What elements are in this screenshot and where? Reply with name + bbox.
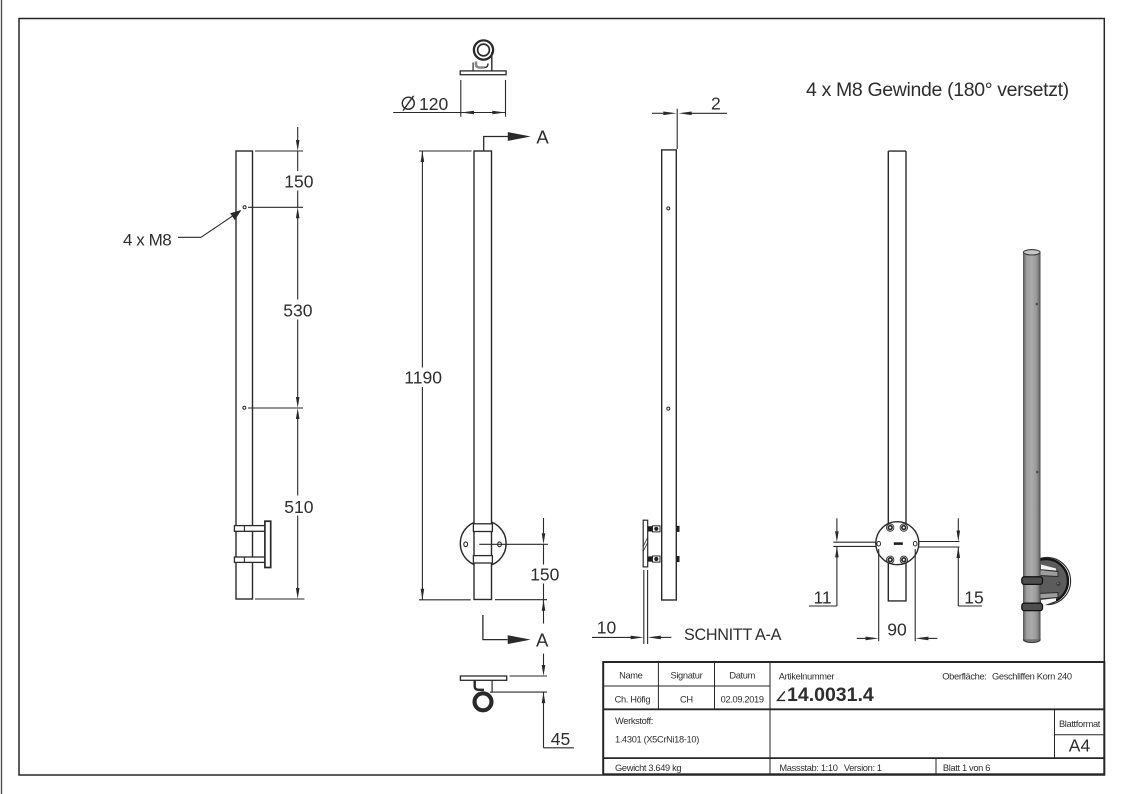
svg-text:4 x M8 Gewinde (180° versetzt): 4 x M8 Gewinde (180° versetzt)	[806, 79, 1069, 101]
svg-text:02.09.2019: 02.09.2019	[721, 695, 764, 705]
svg-text:510: 510	[284, 497, 313, 517]
svg-text:45: 45	[551, 729, 570, 749]
svg-text:Version: 1: Version: 1	[844, 763, 882, 773]
svg-text:Oberfläche:: Oberfläche:	[942, 671, 986, 681]
svg-text:11: 11	[814, 588, 832, 608]
svg-text:Gewicht 3.649 kg: Gewicht 3.649 kg	[615, 763, 681, 773]
svg-text:Werkstoff:: Werkstoff:	[615, 716, 653, 726]
svg-text:Artikelnummer: Artikelnummer	[779, 671, 835, 681]
svg-text:150: 150	[284, 172, 313, 192]
svg-text:1190: 1190	[404, 367, 442, 387]
svg-text:2: 2	[711, 94, 721, 114]
svg-text:Massstab: 1:10: Massstab: 1:10	[779, 763, 837, 773]
svg-text:CH: CH	[680, 695, 693, 705]
svg-text:Geschliffen Korn 240: Geschliffen Korn 240	[992, 671, 1072, 681]
svg-text:Name: Name	[619, 671, 643, 681]
svg-text:Ch. Höfig: Ch. Höfig	[615, 695, 651, 705]
svg-text:120: 120	[419, 94, 448, 114]
svg-text:150: 150	[530, 564, 559, 584]
svg-text:1.4301 (X5CrNi18-10): 1.4301 (X5CrNi18-10)	[615, 735, 699, 745]
svg-text:A4: A4	[1069, 736, 1091, 756]
svg-text:Signatur: Signatur	[670, 671, 702, 681]
svg-text:90: 90	[887, 620, 907, 640]
svg-text:Blatt 1 von 6: Blatt 1 von 6	[943, 763, 990, 773]
svg-text:4 x M8: 4 x M8	[123, 231, 171, 250]
svg-text:10: 10	[597, 618, 617, 638]
svg-text:Datum: Datum	[729, 671, 755, 681]
svg-text:15: 15	[964, 588, 983, 608]
svg-text:SCHNITT A-A: SCHNITT A-A	[684, 626, 782, 644]
svg-text:A: A	[536, 126, 549, 147]
svg-text:14.0031.4: 14.0031.4	[787, 684, 874, 706]
svg-text:Blattformat: Blattformat	[1059, 719, 1101, 729]
svg-text:530: 530	[283, 300, 312, 320]
svg-text:A: A	[536, 629, 549, 650]
